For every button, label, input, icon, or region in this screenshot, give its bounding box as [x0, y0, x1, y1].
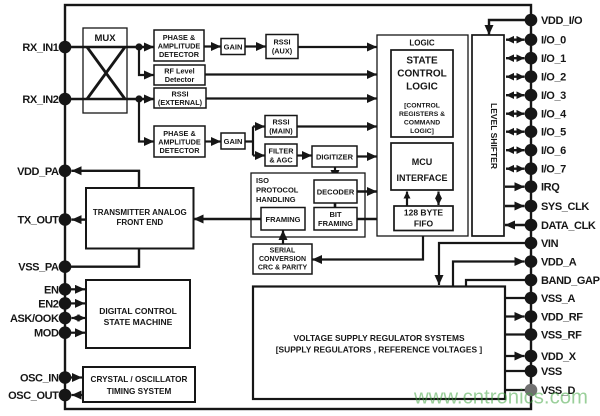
svg-text:BAND_GAP: BAND_GAP: [541, 275, 600, 287]
svg-text:LEVEL SHIFTER: LEVEL SHIFTER: [489, 103, 499, 169]
svg-text:I/O_6: I/O_6: [541, 145, 566, 157]
svg-text:EN2: EN2: [38, 298, 58, 310]
svg-text:HANDLING: HANDLING: [256, 195, 296, 204]
svg-text:FRAMING: FRAMING: [318, 219, 353, 228]
svg-text:RX_IN1: RX_IN1: [22, 42, 58, 54]
svg-text:LOGIC: LOGIC: [409, 39, 435, 48]
svg-text:DETECTOR: DETECTOR: [159, 146, 200, 155]
svg-text:VSS_RF: VSS_RF: [541, 330, 582, 342]
svg-text:CRC & PARITY: CRC & PARITY: [258, 265, 308, 272]
svg-text:I/O_0: I/O_0: [541, 35, 566, 47]
svg-text:STATE MACHINE: STATE MACHINE: [104, 317, 173, 327]
svg-text:FRAMING: FRAMING: [266, 215, 301, 224]
svg-text:I/O_5: I/O_5: [541, 127, 566, 139]
svg-text:OSC_OUT: OSC_OUT: [8, 390, 59, 402]
svg-text:VSS_PA: VSS_PA: [18, 262, 59, 274]
svg-text:VDD_A: VDD_A: [541, 257, 577, 269]
svg-text:VIN: VIN: [541, 238, 559, 250]
svg-text:TRANSMITTER ANALOG: TRANSMITTER ANALOG: [93, 208, 187, 217]
svg-text:128 BYTE: 128 BYTE: [404, 208, 444, 218]
svg-text:OSC_IN: OSC_IN: [20, 373, 59, 385]
svg-text:VDD_I/O: VDD_I/O: [541, 15, 583, 27]
svg-text:MCU: MCU: [412, 157, 433, 167]
svg-text:RSSI: RSSI: [272, 118, 289, 127]
svg-text:I/O_7: I/O_7: [541, 164, 566, 176]
svg-text:DIGITIZER: DIGITIZER: [316, 153, 354, 162]
svg-text:EN: EN: [44, 284, 59, 296]
svg-text:IRQ: IRQ: [541, 182, 560, 194]
svg-text:CONVERSION: CONVERSION: [259, 256, 306, 263]
svg-text:[SUPPLY REGULATORS , REFERENC: [SUPPLY REGULATORS , REFERENCE VOLTAGES …: [276, 345, 483, 355]
svg-text:CRYSTAL / OSCILLATOR: CRYSTAL / OSCILLATOR: [91, 375, 188, 384]
svg-text:www.cntronics.com: www.cntronics.com: [413, 387, 588, 409]
svg-text:DIGITAL CONTROL: DIGITAL CONTROL: [99, 306, 177, 316]
svg-text:FRONT END: FRONT END: [116, 218, 163, 227]
svg-text:& AGC: & AGC: [269, 156, 293, 165]
svg-text:(AUX): (AUX): [272, 47, 293, 56]
svg-text:SYS_CLK: SYS_CLK: [541, 201, 589, 213]
svg-text:I/O_2: I/O_2: [541, 72, 566, 84]
svg-text:SERIAL: SERIAL: [270, 248, 296, 255]
svg-text:VDD_RF: VDD_RF: [541, 312, 583, 324]
svg-text:LOGIC]: LOGIC]: [410, 128, 434, 135]
svg-text:(MAIN): (MAIN): [269, 127, 293, 136]
svg-text:DECODER: DECODER: [317, 188, 355, 197]
svg-text:MUX: MUX: [94, 33, 116, 44]
svg-text:FIFO: FIFO: [414, 219, 434, 229]
svg-text:DATA_CLK: DATA_CLK: [541, 220, 596, 232]
svg-text:BIT: BIT: [329, 210, 342, 219]
svg-text:RX_IN2: RX_IN2: [22, 94, 58, 106]
svg-text:DETECTOR: DETECTOR: [159, 50, 200, 59]
svg-text:STATE: STATE: [406, 56, 438, 67]
svg-text:VDD_X: VDD_X: [541, 351, 577, 363]
svg-text:ISO: ISO: [256, 176, 269, 185]
svg-text:INTERFACE: INTERFACE: [396, 173, 447, 183]
svg-text:TIMING SYSTEM: TIMING SYSTEM: [107, 387, 172, 396]
svg-text:GAIN: GAIN: [224, 42, 243, 51]
svg-text:Detector: Detector: [165, 75, 195, 84]
svg-text:VSS: VSS: [541, 366, 562, 378]
svg-text:VDD_PA: VDD_PA: [17, 166, 59, 178]
svg-text:RSSI: RSSI: [273, 38, 290, 47]
svg-text:VSS_A: VSS_A: [541, 293, 576, 305]
svg-text:REGISTERS &: REGISTERS &: [399, 111, 445, 118]
svg-text:TX_OUT: TX_OUT: [18, 215, 60, 227]
svg-text:[CONTROL: [CONTROL: [404, 103, 440, 110]
svg-text:COMMAND: COMMAND: [404, 120, 440, 127]
svg-text:VOLTAGE SUPPLY REGULATOR SYSTE: VOLTAGE SUPPLY REGULATOR SYSTEMS: [293, 333, 465, 343]
svg-text:GAIN: GAIN: [224, 137, 243, 146]
svg-text:PROTOCOL: PROTOCOL: [256, 186, 299, 195]
svg-text:I/O_4: I/O_4: [541, 109, 567, 121]
svg-text:I/O_3: I/O_3: [541, 90, 566, 102]
svg-text:(EXTERNAL): (EXTERNAL): [158, 98, 203, 107]
svg-text:I/O_1: I/O_1: [541, 53, 566, 65]
svg-text:CONTROL: CONTROL: [397, 69, 446, 80]
svg-text:LOGIC: LOGIC: [406, 82, 438, 93]
svg-text:FILTER: FILTER: [269, 147, 295, 156]
svg-text:ASK/OOK: ASK/OOK: [10, 313, 59, 325]
svg-text:MOD: MOD: [34, 328, 59, 340]
